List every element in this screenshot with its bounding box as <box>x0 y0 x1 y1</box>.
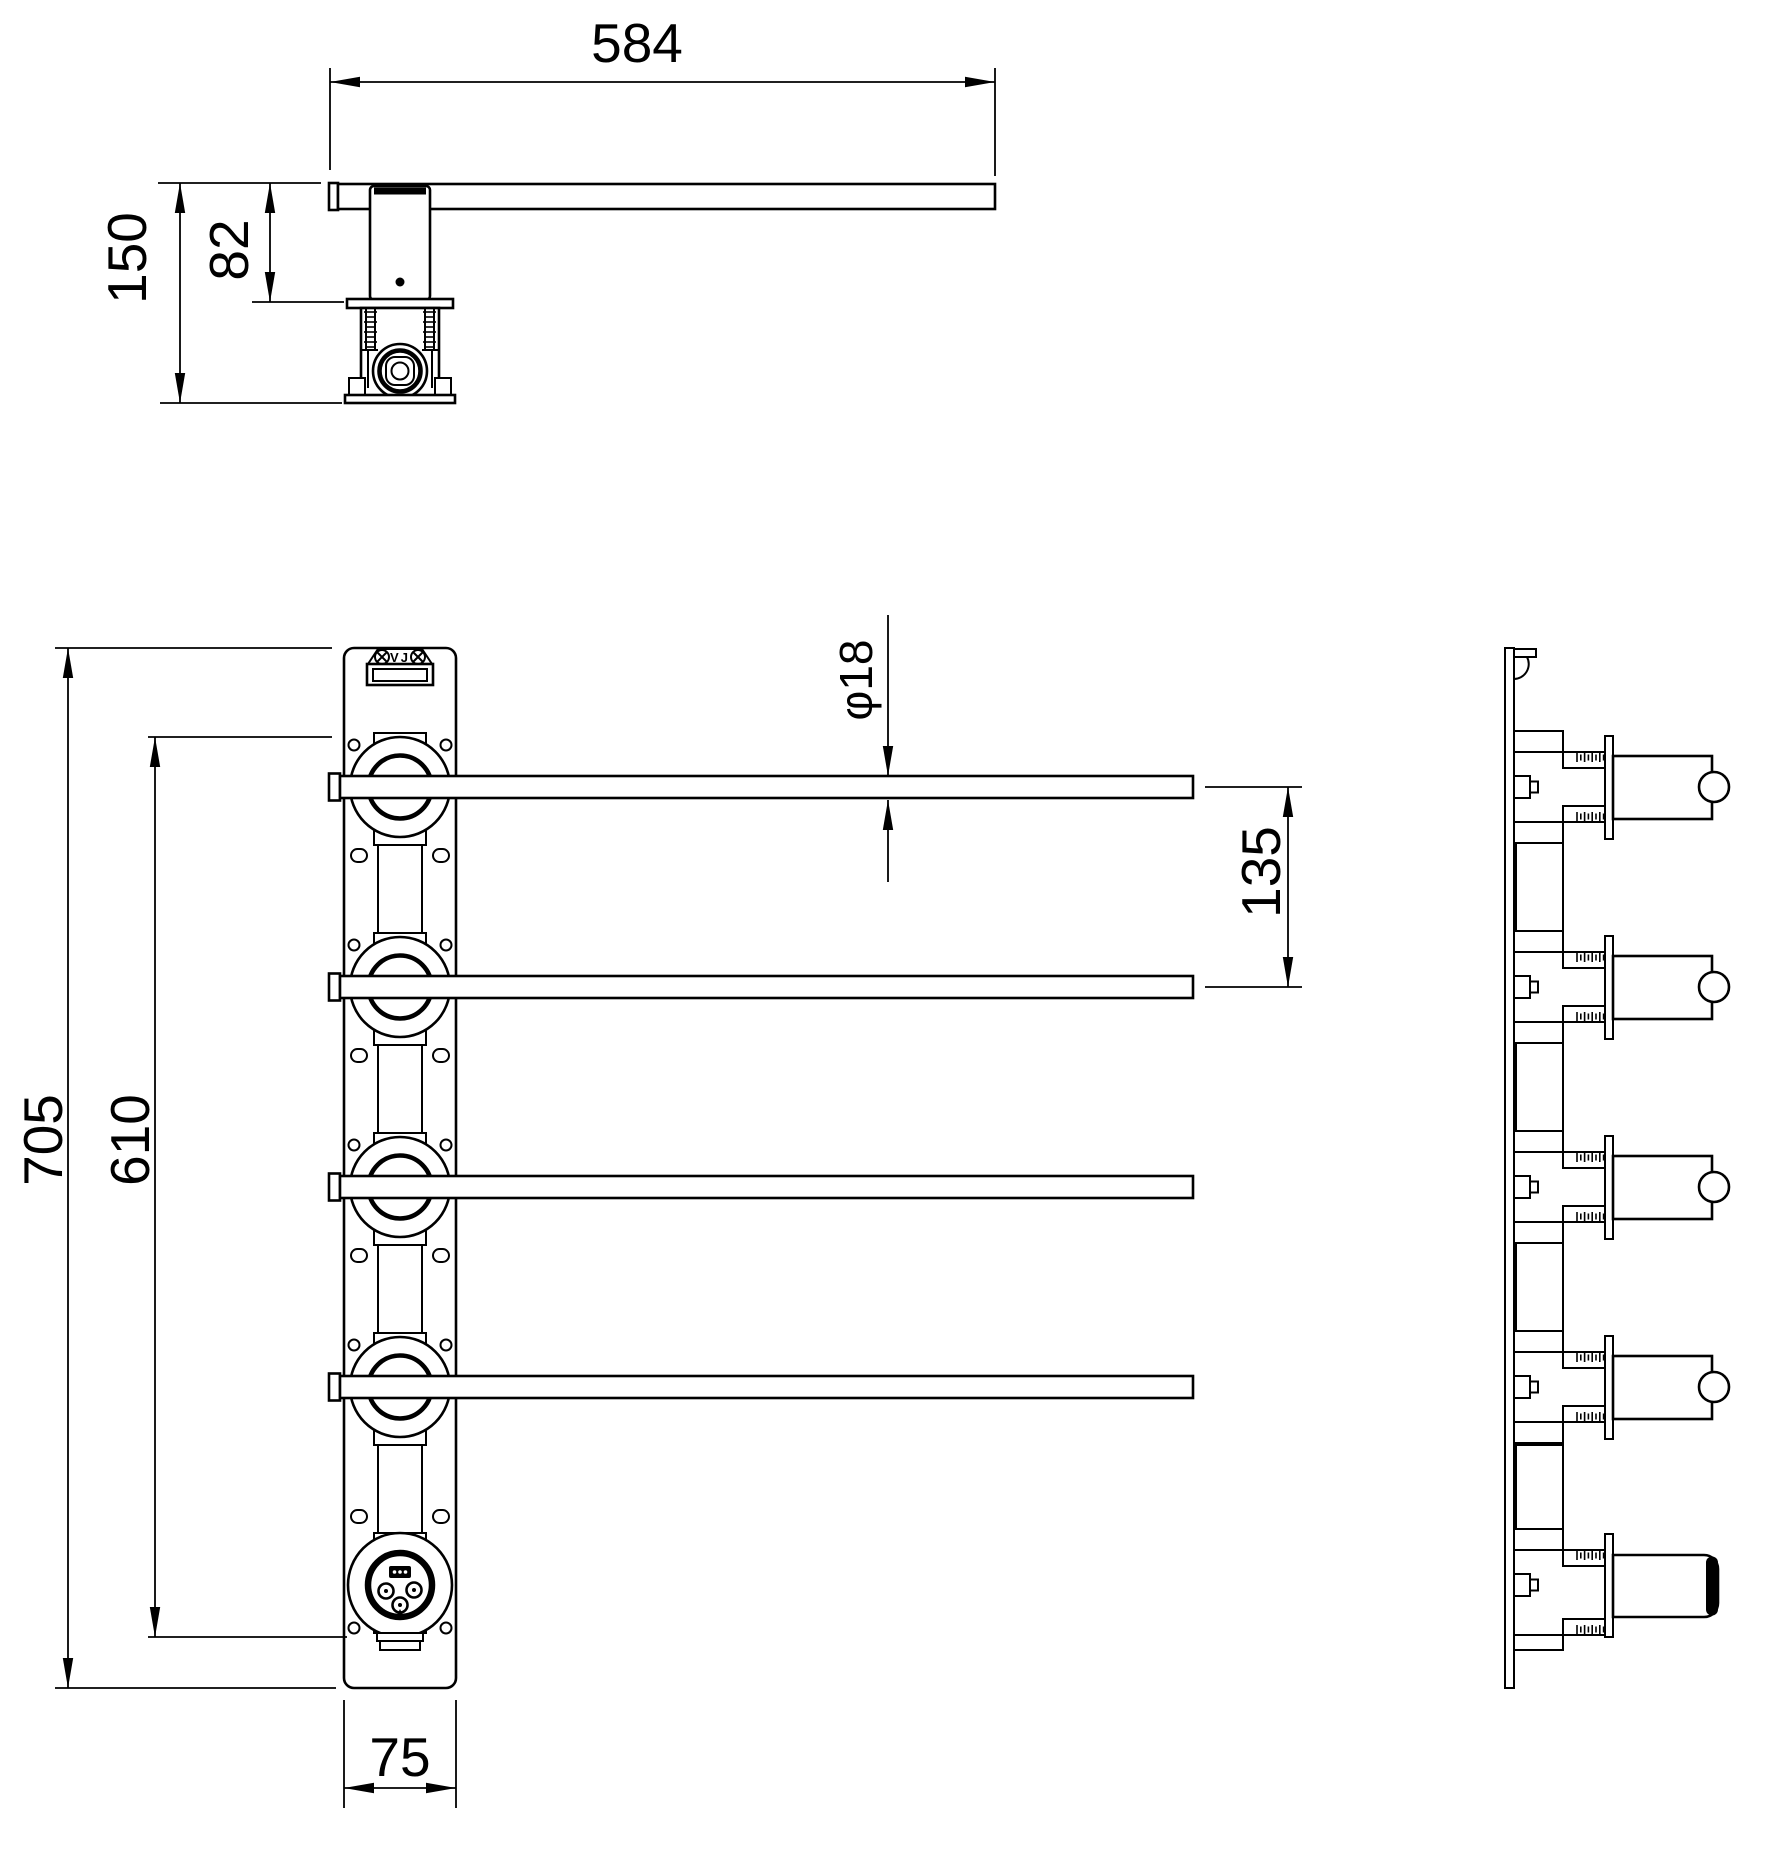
dim-label-584: 584 <box>591 12 683 74</box>
top-view-concealed-bracket <box>345 308 455 403</box>
bracket-foot-left <box>349 378 365 396</box>
side-link-1 <box>1516 843 1563 931</box>
towel-bar-3 <box>329 1174 1193 1201</box>
brand-plate: VJ <box>367 649 433 685</box>
side-link-4 <box>1516 1445 1563 1533</box>
towel-rail-dimension-drawing: 584 82 150 <box>0 0 1781 1872</box>
dim-overall-height: 705 <box>12 648 336 1688</box>
dim-label-610: 610 <box>99 1094 161 1186</box>
bracket-base-plate <box>345 395 455 403</box>
towel-bar-2 <box>329 974 1193 1001</box>
dim-bar-pitch: 135 <box>1205 787 1302 987</box>
top-view: 584 82 150 <box>96 12 995 403</box>
dim-label-75: 75 <box>369 1726 430 1788</box>
set-screw-hole <box>396 278 405 287</box>
side-wall-plate <box>1505 648 1514 1688</box>
side-power-unit <box>1514 1529 1718 1650</box>
dim-label-82: 82 <box>198 219 260 280</box>
side-mount-3 <box>1514 1131 1729 1243</box>
side-link-3 <box>1516 1243 1563 1331</box>
dim-label-705: 705 <box>12 1094 74 1186</box>
dim-mount-span: 610 <box>99 737 347 1637</box>
side-mount-1 <box>1514 731 1729 843</box>
dim-total-depth: 150 <box>96 183 342 403</box>
technical-drawing-page: 584 82 150 <box>0 0 1781 1872</box>
side-mount-2 <box>1514 931 1729 1043</box>
side-link-2 <box>1516 1043 1563 1131</box>
side-connector-cap <box>1706 1557 1718 1616</box>
top-view-mount-post <box>370 186 430 300</box>
side-top-hook <box>1514 649 1536 679</box>
dim-panel-width: 75 <box>344 1700 456 1808</box>
bracket-foot-right <box>435 378 451 396</box>
dim-label-135: 135 <box>1230 826 1292 918</box>
towel-bar-4 <box>329 1374 1193 1401</box>
side-mount-4 <box>1514 1331 1729 1443</box>
dim-label-phi18: φ18 <box>830 640 882 721</box>
towel-bar-1 <box>329 774 1193 801</box>
dim-bar-to-flange: 82 <box>198 183 344 302</box>
side-connector-housing <box>1613 1555 1718 1617</box>
dim-bar-diameter: φ18 <box>830 615 893 882</box>
front-view: VJ <box>12 615 1302 1808</box>
dim-bar-length: 584 <box>330 12 995 176</box>
top-view-wall-flange <box>347 299 453 308</box>
dim-label-150: 150 <box>96 212 158 304</box>
side-view <box>1505 648 1729 1688</box>
